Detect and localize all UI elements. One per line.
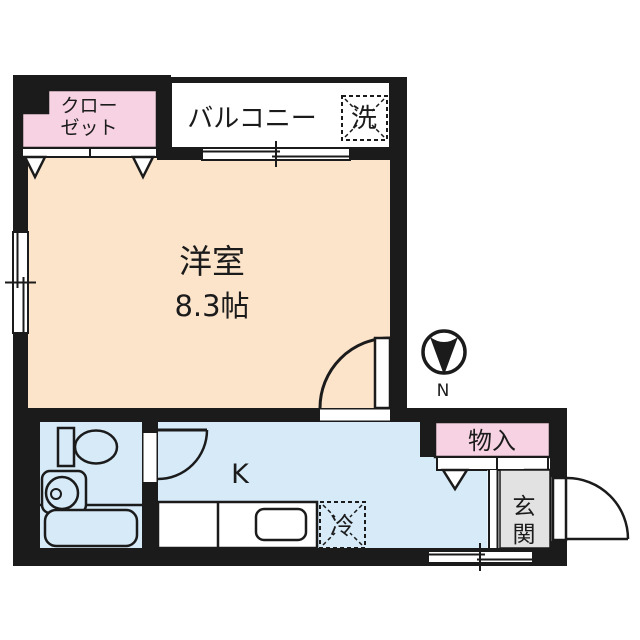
entrance-label-char2: 関 — [513, 522, 536, 548]
refrigerator-label: 冷 — [330, 512, 354, 540]
entrance-door-leaf — [553, 478, 566, 540]
closet-label-line1: クロー — [60, 95, 117, 117]
washing-machine-label: 洗 — [351, 104, 377, 134]
storage-door-track-right — [497, 457, 548, 470]
wall-under-balcony-left — [157, 148, 202, 160]
closet-door-track-left — [22, 148, 90, 157]
kitchen-counter — [158, 502, 317, 548]
wall-middle-horizontal — [13, 408, 567, 422]
toilet-bowl — [75, 431, 117, 464]
compass-north-label: N — [437, 381, 450, 401]
balcony-label: バルコニー — [187, 104, 316, 134]
storage-label: 物入 — [468, 427, 516, 455]
floor-plan: バルコニー 洗 クロー ゼット 洋室 8.3帖 — [0, 0, 640, 640]
balcony-railing — [171, 78, 390, 83]
toilet — [58, 428, 117, 466]
wall-under-balcony-right — [350, 148, 390, 160]
balcony: バルコニー 洗 — [171, 78, 390, 148]
entrance-label-char1: 玄 — [513, 494, 536, 520]
wall-storage-left — [420, 420, 435, 457]
closet-label-line2: ゼット — [60, 117, 117, 139]
western-room-floor — [28, 157, 390, 408]
room-door-opening — [320, 410, 390, 421]
bathroom-door-opening — [144, 433, 157, 482]
wall-top — [13, 75, 171, 90]
kitchen-sink — [256, 509, 306, 540]
sink-drain — [51, 489, 61, 499]
storage-door-track-left — [437, 457, 497, 470]
room-door-leaf — [375, 338, 390, 408]
wall-right-upper — [390, 77, 407, 422]
closet-door-track-right — [90, 148, 157, 157]
sink — [42, 471, 86, 513]
western-room-label: 洋室 — [179, 242, 245, 281]
wall-bathroom-left — [13, 408, 40, 566]
bathtub — [45, 510, 137, 546]
entrance: 玄 関 — [488, 470, 551, 548]
western-room-size: 8.3帖 — [174, 289, 249, 323]
toilet-tank — [58, 428, 74, 466]
kitchen-label: K — [231, 459, 250, 490]
wall-closet-right — [157, 90, 171, 148]
